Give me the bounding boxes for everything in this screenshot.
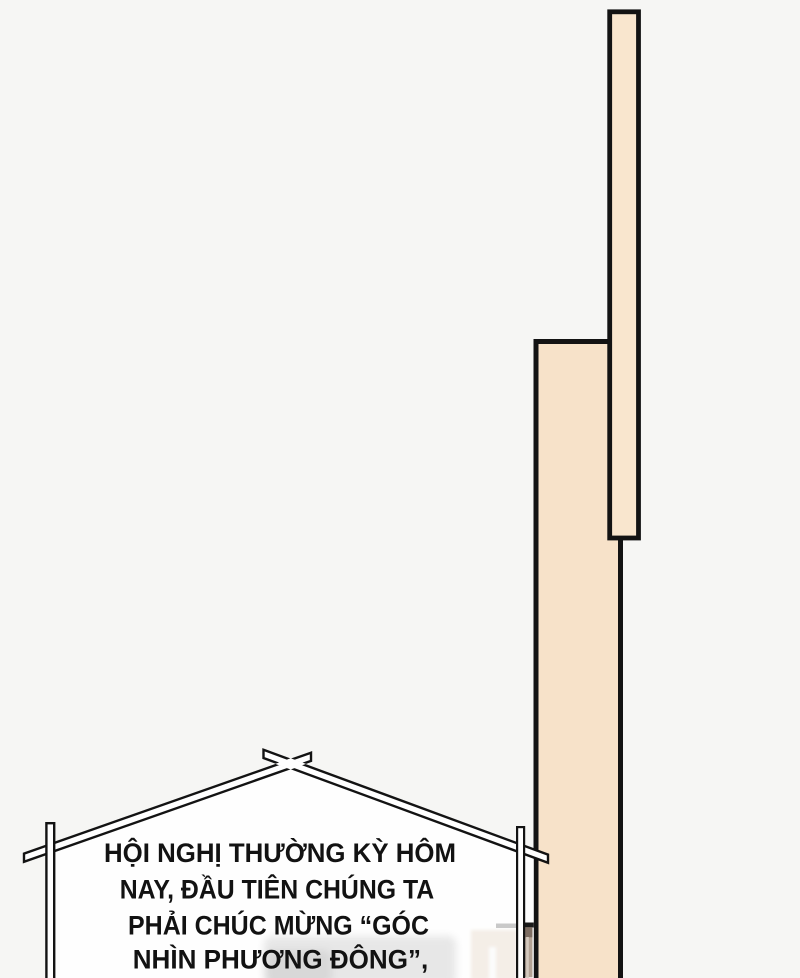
svg-text:HỘI NGHỊ THƯỜNG KỲ HÔM: HỘI NGHỊ THƯỜNG KỲ HÔM (104, 837, 456, 868)
svg-text:PHẢI CHÚC MỪNG “GÓC: PHẢI CHÚC MỪNG “GÓC (128, 909, 429, 941)
svg-text:NHÌN PHƯƠNG ĐÔNG”,: NHÌN PHƯƠNG ĐÔNG”, (133, 944, 429, 975)
svg-text:NAY, ĐẦU TIÊN CHÚNG TA: NAY, ĐẦU TIÊN CHÚNG TA (120, 874, 435, 905)
